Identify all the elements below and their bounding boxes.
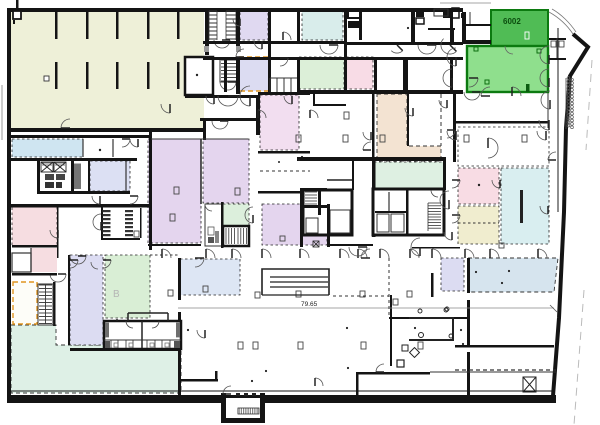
svg-text:B: B — [113, 289, 120, 300]
svg-text:79.65: 79.65 — [301, 301, 318, 308]
svg-text:6002: 6002 — [503, 17, 521, 26]
